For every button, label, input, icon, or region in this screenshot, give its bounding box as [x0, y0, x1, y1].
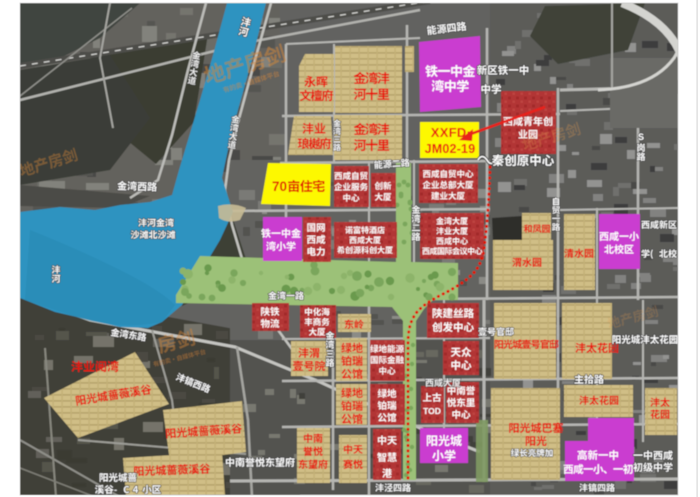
svg-text:S: S: [638, 132, 644, 142]
svg-text:TOD: TOD: [423, 406, 441, 416]
svg-text:JM02-19: JM02-19: [425, 142, 476, 156]
svg-text:70: 70: [272, 179, 287, 194]
